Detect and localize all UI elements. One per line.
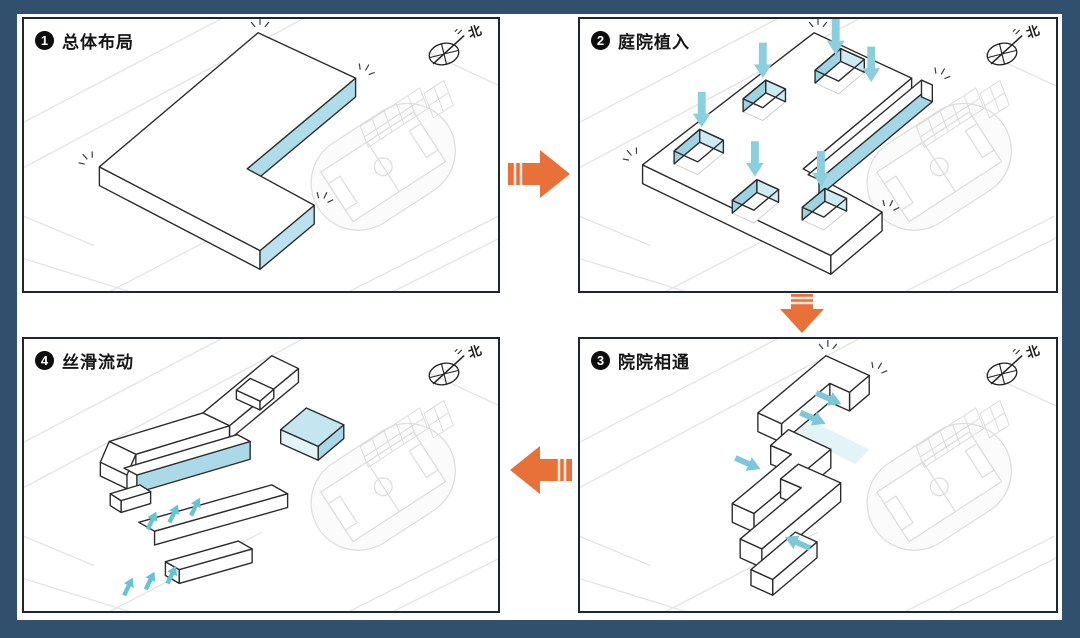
smooth-flow-arrows [119,495,204,597]
panel-2-title: 庭院植入 [618,28,690,53]
flow-arrow-right-icon [508,146,574,202]
panel-4-title: 丝滑流动 [62,348,134,373]
panel-1-overall-layout: 1 总体布局 北 [22,17,500,293]
compass-north-label: 北 [466,345,483,361]
compass-north-label: 北 [1024,345,1041,361]
panel-3-title: 院院相通 [618,348,690,373]
serpentine-bottom-band [139,485,288,545]
panel-3-number-badge: 3 [591,351,610,370]
panel-2-number-badge: 2 [591,31,610,50]
panel-1-title: 总体布局 [62,28,134,53]
gym-blue-box [281,408,344,460]
panel-1-header: 1 总体布局 [35,28,134,53]
panel-3-header: 3 院院相通 [591,348,690,373]
panel-3-courtyards-connected: 3 院院相通 北 [578,337,1058,613]
building-top-face [99,33,355,251]
flow-arrow-down-icon [774,294,830,336]
compass-north-label: 北 [466,25,483,41]
panel-1-number-badge: 1 [35,31,54,50]
panel-4-header: 4 丝滑流动 [35,348,134,373]
flow-arrow-left-icon [506,442,572,498]
panel-2-courtyard-insert: 2 庭院植入 北 [578,17,1058,293]
compass-icon: 北 [420,25,490,75]
left-wing [110,485,150,513]
compass-icon: 北 [420,345,490,395]
panel-4-number-badge: 4 [35,351,54,370]
serpentine-tail [165,541,252,583]
compass-north-label: 北 [1024,25,1041,41]
panel-4-smooth-flow: 4 丝滑流动 北 [22,337,500,613]
concept-diagram-canvas: 1 总体布局 北 [0,0,1080,638]
panel-2-header: 2 庭院植入 [591,28,690,53]
compass-icon: 北 [978,345,1048,395]
compass-icon: 北 [978,25,1048,75]
